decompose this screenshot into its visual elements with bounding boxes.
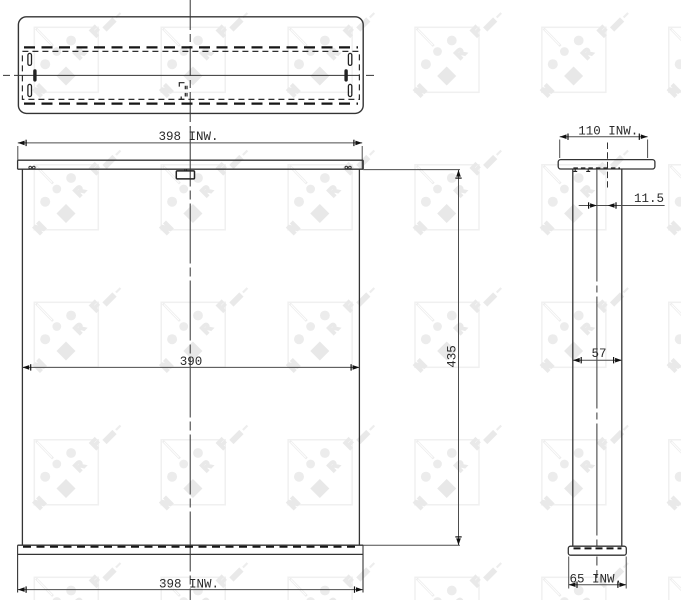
svg-text:398 INW.: 398 INW. (158, 130, 218, 144)
svg-text:57: 57 (591, 347, 606, 361)
svg-text:11.5: 11.5 (634, 192, 664, 206)
svg-text:435: 435 (446, 345, 460, 368)
